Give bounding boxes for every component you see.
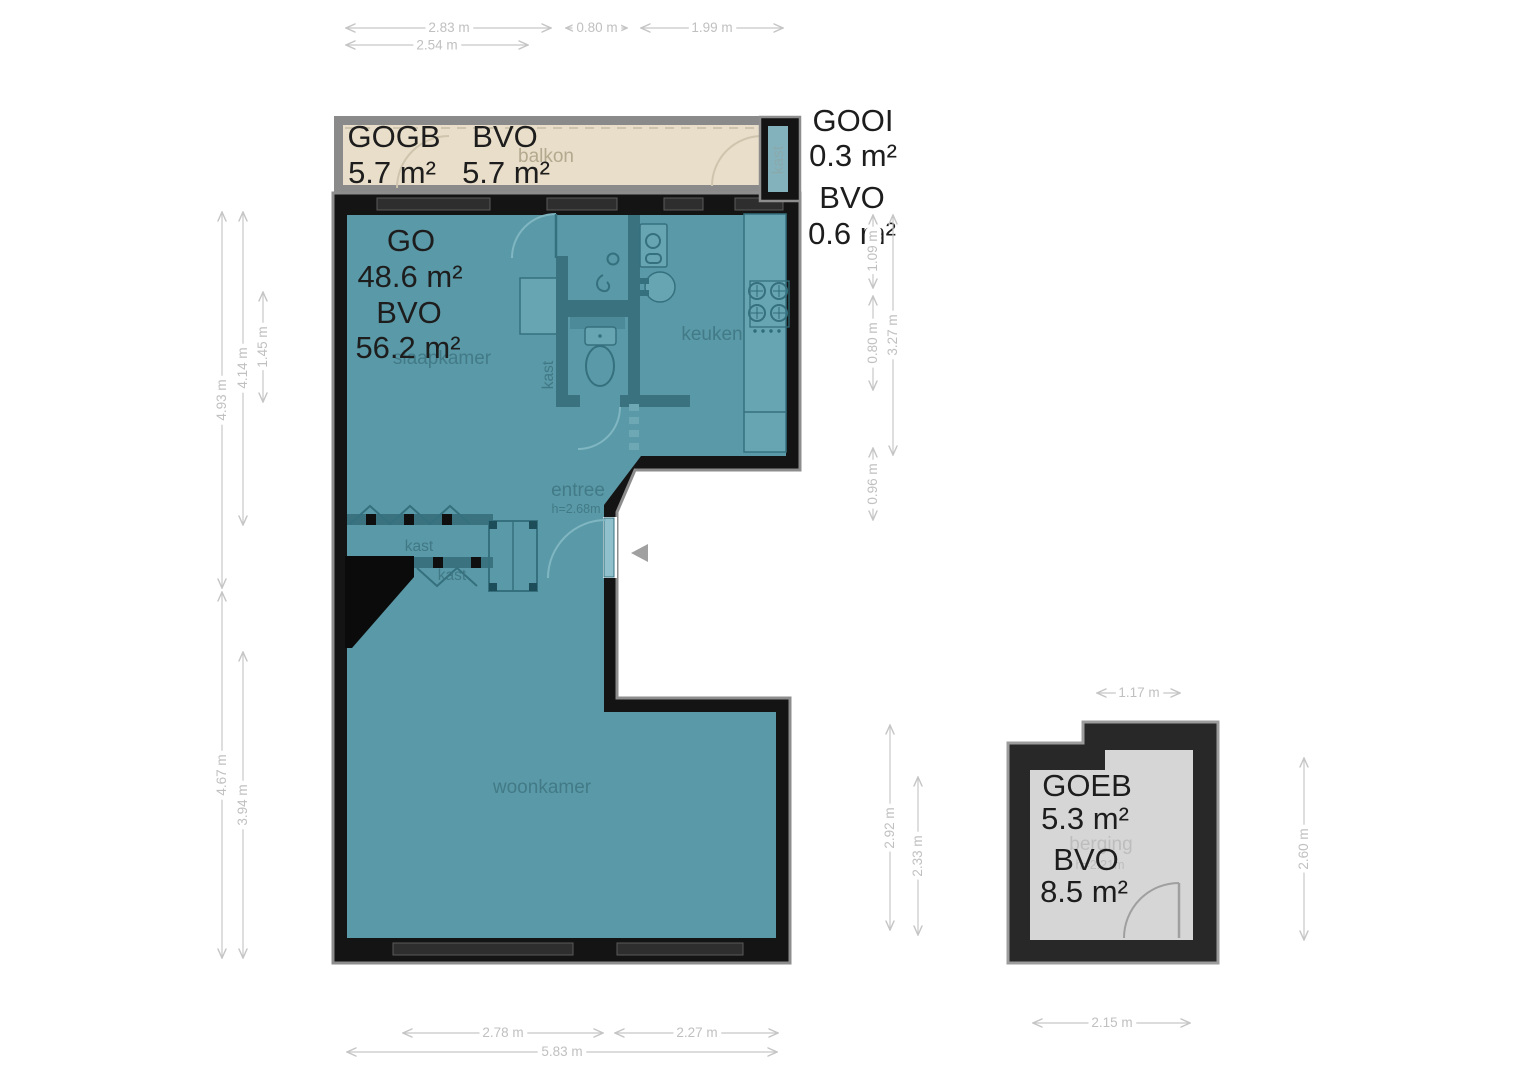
dimension-label: 2.27 m bbox=[676, 1025, 717, 1040]
washing-machine-icon bbox=[640, 224, 667, 267]
dimension: 2.27 m bbox=[615, 1025, 778, 1040]
dimension: 1.99 m bbox=[641, 20, 783, 35]
dimension: 2.83 m bbox=[346, 20, 551, 35]
dimension: 5.83 m bbox=[347, 1044, 777, 1059]
entrance-arrow-icon bbox=[631, 544, 648, 562]
dimension-label: 0.96 m bbox=[865, 463, 880, 504]
dimension: 0.96 m bbox=[865, 448, 880, 520]
dimension: 2.78 m bbox=[403, 1025, 603, 1040]
area-bvo-value: 56.2 m² bbox=[355, 330, 460, 365]
dimension: 1.45 m bbox=[255, 292, 270, 402]
floor-plan-page: balkon bbox=[0, 0, 1527, 1080]
area-bvo-value: 8.5 m² bbox=[1040, 874, 1128, 909]
dimension: 4.14 m bbox=[235, 212, 250, 525]
window bbox=[393, 943, 573, 955]
dimension: 3.27 m bbox=[885, 215, 900, 455]
dimension-label: 4.67 m bbox=[214, 754, 229, 795]
dimension-label: 2.54 m bbox=[416, 38, 457, 53]
dimension-label: 0.80 m bbox=[865, 322, 880, 363]
dimension-label: 2.83 m bbox=[428, 20, 469, 35]
kitchen-counter bbox=[744, 214, 786, 452]
dimension: 2.60 m bbox=[1296, 758, 1311, 940]
area-bvo-code: BVO bbox=[472, 119, 537, 154]
dimension-label: 5.83 m bbox=[541, 1044, 582, 1059]
dimension: 2.92 m bbox=[882, 725, 897, 930]
shower-partition bbox=[567, 300, 628, 317]
room-label-closet: kast bbox=[540, 360, 557, 389]
dimension-label: 2.92 m bbox=[882, 807, 897, 848]
area-bvo-code: BVO bbox=[819, 180, 884, 215]
dimension-label: 4.14 m bbox=[235, 347, 250, 388]
outdoor-closet: kast bbox=[760, 117, 800, 201]
dimension: 4.93 m bbox=[214, 212, 229, 588]
dimension: 1.17 m bbox=[1097, 685, 1180, 700]
area-value: 5.7 m² bbox=[348, 155, 436, 190]
dimension-label: 1.17 m bbox=[1118, 685, 1159, 700]
window bbox=[547, 198, 617, 210]
dimension-label: 2.33 m bbox=[910, 835, 925, 876]
dimension: 2.33 m bbox=[910, 777, 925, 935]
area-code: GO bbox=[387, 223, 435, 258]
dimension-label: 0.80 m bbox=[576, 20, 617, 35]
room-label-hall: entree bbox=[551, 480, 605, 501]
dimension: 0.80 m bbox=[566, 20, 627, 35]
area-code: GOEB bbox=[1042, 768, 1132, 803]
dimension: 4.67 m bbox=[214, 592, 229, 958]
room-label-closet: kast bbox=[438, 567, 467, 584]
area-bvo-value: 0.6 m² bbox=[808, 216, 896, 251]
window bbox=[617, 943, 743, 955]
bathroom-bottom-wall bbox=[556, 395, 580, 407]
dimension: 2.15 m bbox=[1033, 1015, 1190, 1030]
area-bvo-code: BVO bbox=[1053, 842, 1118, 877]
hall-height-label: h=2.68m bbox=[552, 502, 601, 516]
room-label-closet: kast bbox=[405, 538, 434, 555]
area-value: 0.3 m² bbox=[809, 138, 897, 173]
window bbox=[664, 198, 703, 210]
dimension-label: 4.93 m bbox=[214, 379, 229, 420]
dimension-label: 1.99 m bbox=[691, 20, 732, 35]
room-label-closet: kast bbox=[770, 145, 787, 174]
room-label-living: woonkamer bbox=[492, 777, 592, 798]
dimension: 2.54 m bbox=[346, 38, 528, 53]
area-bvo-value: 5.7 m² bbox=[462, 155, 550, 190]
dimension-label: 2.60 m bbox=[1296, 828, 1311, 869]
area-value: 5.3 m² bbox=[1041, 801, 1129, 836]
dimension-label: 1.45 m bbox=[255, 326, 270, 367]
bedroom-cabinet bbox=[520, 278, 557, 334]
area-code: GOGB bbox=[347, 119, 440, 154]
area-value: 48.6 m² bbox=[357, 259, 462, 294]
bathroom-right-wall bbox=[628, 215, 640, 395]
dimension: 3.94 m bbox=[235, 652, 250, 958]
dimension-label: 2.78 m bbox=[482, 1025, 523, 1040]
room-label-kitchen: keuken bbox=[681, 324, 742, 345]
area-label-outdoor-closet: GOOI 0.3 m² BVO 0.6 m² bbox=[808, 103, 897, 251]
dimension-label: 2.15 m bbox=[1091, 1015, 1132, 1030]
floor-plan-canvas: balkon bbox=[0, 0, 1527, 1080]
dimension-label: 3.27 m bbox=[885, 314, 900, 355]
window bbox=[377, 198, 490, 210]
bathroom-left-wall bbox=[556, 256, 568, 395]
dimension-label: 1.09 m bbox=[865, 230, 880, 271]
dimension: 0.80 m bbox=[865, 296, 880, 390]
window-band-bottom bbox=[393, 943, 743, 955]
area-bvo-code: BVO bbox=[376, 295, 441, 330]
area-code: GOOI bbox=[813, 103, 894, 138]
dimension-label: 3.94 m bbox=[235, 784, 250, 825]
